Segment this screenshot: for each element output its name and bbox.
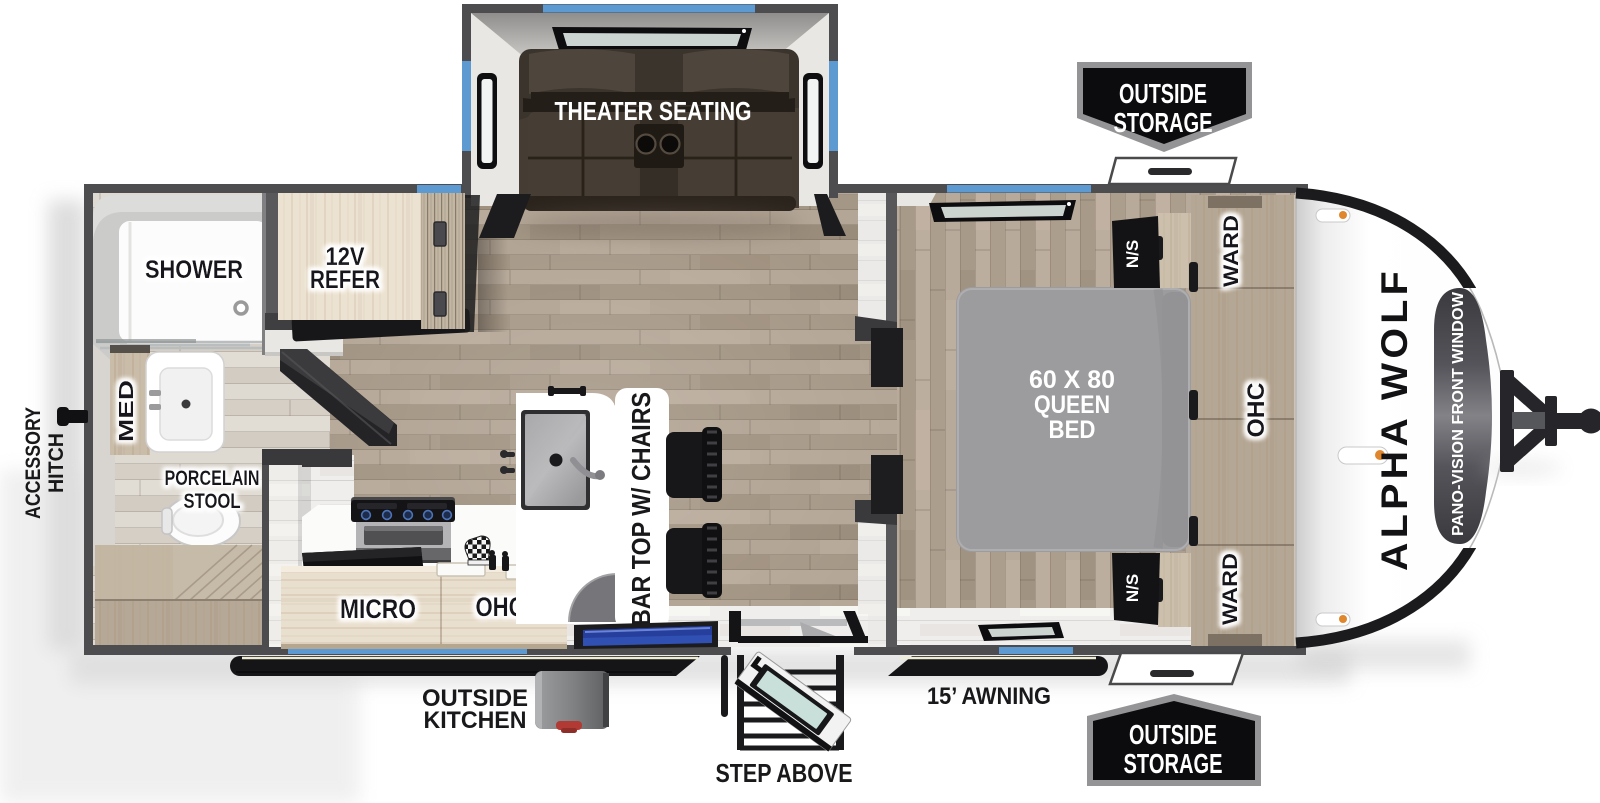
svg-text:MICRO: MICRO — [340, 594, 416, 624]
svg-text:KITCHEN: KITCHEN — [424, 707, 527, 734]
svg-text:HITCH: HITCH — [45, 433, 68, 493]
svg-text:MED: MED — [116, 380, 138, 442]
svg-text:SHOWER: SHOWER — [145, 256, 243, 284]
svg-text:THEATER SEATING: THEATER SEATING — [555, 96, 752, 126]
svg-text:STORAGE: STORAGE — [1114, 107, 1213, 138]
svg-text:STEP ABOVE: STEP ABOVE — [716, 758, 853, 788]
svg-text:QUEEN: QUEEN — [1034, 391, 1110, 419]
svg-text:STORAGE: STORAGE — [1124, 748, 1223, 779]
svg-text:REFER: REFER — [310, 266, 380, 294]
svg-text:BAR TOP W/ CHAIRS: BAR TOP W/ CHAIRS — [626, 392, 656, 626]
svg-text:OUTSIDE: OUTSIDE — [1129, 719, 1217, 750]
svg-text:60 X 80: 60 X 80 — [1029, 366, 1115, 394]
svg-text:ACCESSORY: ACCESSORY — [22, 407, 45, 519]
svg-text:WARD: WARD — [1220, 215, 1243, 287]
svg-text:N/S: N/S — [1123, 240, 1142, 268]
svg-text:OHC: OHC — [1243, 383, 1270, 438]
svg-text:PORCELAIN: PORCELAIN — [165, 467, 260, 490]
svg-text:OUTSIDE: OUTSIDE — [1119, 78, 1207, 109]
svg-text:N/S: N/S — [1123, 574, 1142, 602]
svg-text:PANO-VISION FRONT WINDOW: PANO-VISION FRONT WINDOW — [1450, 291, 1467, 536]
svg-text:15’ AWNING: 15’ AWNING — [927, 683, 1051, 710]
svg-text:STOOL: STOOL — [184, 490, 241, 513]
svg-text:WARD: WARD — [1219, 553, 1242, 625]
svg-text:ALPHA WOLF: ALPHA WOLF — [1374, 267, 1415, 571]
svg-text:BED: BED — [1049, 416, 1096, 444]
